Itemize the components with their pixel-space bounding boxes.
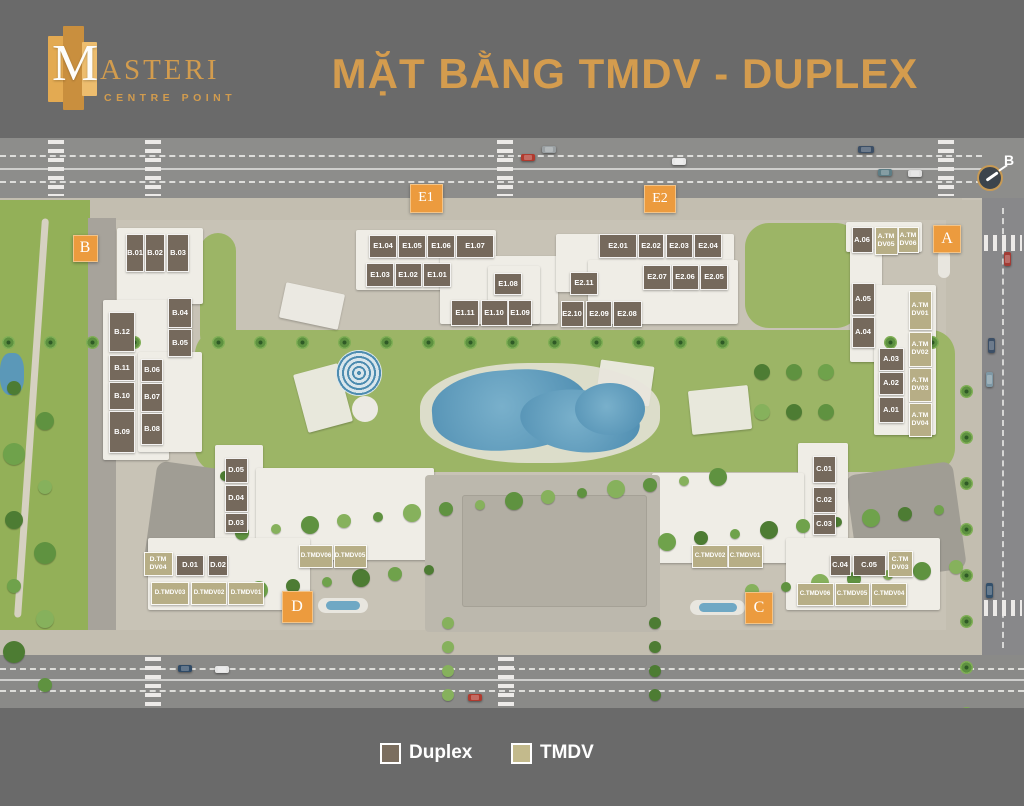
unit-label-D.TMDV05: D.TMDV05	[334, 545, 367, 568]
legend-swatch-tmdv	[511, 743, 532, 764]
unit-label-C.TMDV01: C.TMDV01	[728, 545, 763, 568]
unit-label-B.08: B.08	[141, 413, 163, 445]
block-badge-C: C	[745, 592, 773, 624]
unit-label-B.10: B.10	[109, 382, 135, 410]
block-badge-E1: E1	[410, 184, 443, 213]
unit-label-E2.02: E2.02	[638, 234, 664, 258]
unit-label-C.02: C.02	[813, 487, 836, 513]
unit-label-D.TMDV02: D.TMDV02	[191, 582, 227, 605]
block-badge-E2: E2	[644, 185, 676, 213]
unit-label-E1.07: E1.07	[456, 235, 494, 258]
unit-label-A.06: A.06	[852, 227, 873, 253]
legend-item-duplex: Duplex	[380, 742, 472, 764]
unit-label-E2.03: E2.03	[666, 234, 693, 258]
unit-label-A.TMDV04: A.TM DV04	[909, 403, 932, 437]
unit-label-D.TMDV06: D.TMDV06	[299, 545, 333, 568]
unit-label-A.03: A.03	[879, 348, 904, 371]
unit-label-C.03: C.03	[813, 514, 836, 535]
unit-label-E1.06: E1.06	[427, 235, 455, 258]
unit-label-A.05: A.05	[852, 283, 875, 315]
page-background: { "header": { "logo": { "m": "M", "rest"…	[0, 0, 1024, 806]
unit-label-E1.11: E1.11	[451, 300, 479, 326]
unit-label-D.TMDV01: D.TMDV01	[228, 582, 264, 605]
unit-label-C.01: C.01	[813, 456, 836, 483]
unit-label-B.09: B.09	[109, 411, 135, 453]
unit-label-A.02: A.02	[879, 372, 904, 395]
unit-label-C.TMDV04: C.TMDV04	[871, 583, 907, 606]
unit-label-C.TMDV02: C.TMDV02	[692, 545, 728, 568]
unit-label-D.01: D.01	[176, 555, 204, 576]
unit-label-B.06: B.06	[141, 359, 163, 382]
unit-label-B.11: B.11	[109, 355, 135, 381]
unit-label-E2.05: E2.05	[700, 265, 728, 290]
unit-label-B.01: B.01	[126, 234, 144, 272]
unit-label-B.04: B.04	[168, 298, 192, 328]
unit-label-D.02: D.02	[208, 555, 228, 576]
unit-label-B.07: B.07	[141, 383, 163, 412]
block-badge-D: D	[282, 591, 313, 623]
legend: Duplex TMDV	[0, 736, 1024, 776]
unit-label-A.TMDV06: A.TM DV06	[898, 227, 919, 253]
unit-label-C.TMDV06: C.TMDV06	[797, 583, 834, 606]
map-label-overlay: B.01B.02B.03B.04B.05B.12B.11B.10B.09B.06…	[0, 0, 1024, 806]
unit-label-D.TMDV04: D.TM DV04	[144, 552, 173, 576]
unit-label-E1.01: E1.01	[423, 263, 451, 287]
unit-label-A.TMDV03: A.TM DV03	[909, 368, 932, 402]
unit-label-E1.05: E1.05	[398, 235, 426, 258]
unit-label-E2.09: E2.09	[586, 301, 612, 327]
unit-label-C.04: C.04	[830, 555, 851, 576]
unit-label-E1.08: E1.08	[494, 273, 522, 295]
unit-label-E2.11: E2.11	[570, 272, 598, 295]
block-badge-A: A	[933, 225, 961, 253]
unit-label-B.05: B.05	[168, 329, 192, 357]
unit-label-A.TMDV01: A.TM DV01	[909, 291, 932, 330]
unit-label-D.05: D.05	[225, 458, 248, 483]
unit-label-E1.02: E1.02	[395, 263, 422, 287]
legend-swatch-duplex	[380, 743, 401, 764]
unit-label-C.TMDV03: C.TM DV03	[888, 551, 913, 577]
unit-label-E2.06: E2.06	[672, 265, 699, 290]
unit-label-B.12: B.12	[109, 312, 135, 352]
unit-label-E2.08: E2.08	[613, 301, 642, 327]
legend-label-tmdv: TMDV	[540, 742, 594, 764]
unit-label-E2.07: E2.07	[643, 265, 671, 290]
unit-label-A.01: A.01	[879, 397, 904, 423]
unit-label-E1.09: E1.09	[508, 300, 532, 326]
unit-label-E2.01: E2.01	[599, 234, 637, 258]
unit-label-A.TMDV02: A.TM DV02	[909, 332, 932, 367]
north-label: B	[1004, 152, 1014, 168]
unit-label-E1.04: E1.04	[369, 235, 397, 258]
unit-label-A.04: A.04	[852, 317, 875, 348]
unit-label-B.03: B.03	[167, 234, 189, 272]
unit-label-B.02: B.02	[145, 234, 165, 272]
block-badge-B: B	[73, 235, 98, 262]
unit-label-E2.10: E2.10	[561, 301, 584, 327]
unit-label-D.04: D.04	[225, 485, 248, 512]
legend-item-tmdv: TMDV	[511, 742, 594, 764]
unit-label-C.TMDV05: C.TMDV05	[835, 583, 870, 606]
unit-label-C.05: C.05	[853, 555, 886, 576]
unit-label-E2.04: E2.04	[694, 234, 722, 258]
unit-label-A.TMDV05: A.TM DV05	[875, 227, 898, 255]
unit-label-E1.03: E1.03	[366, 263, 394, 287]
unit-label-D.03: D.03	[225, 513, 248, 533]
unit-label-E1.10: E1.10	[481, 300, 508, 326]
legend-label-duplex: Duplex	[409, 742, 472, 764]
unit-label-D.TMDV03: D.TMDV03	[151, 582, 189, 605]
